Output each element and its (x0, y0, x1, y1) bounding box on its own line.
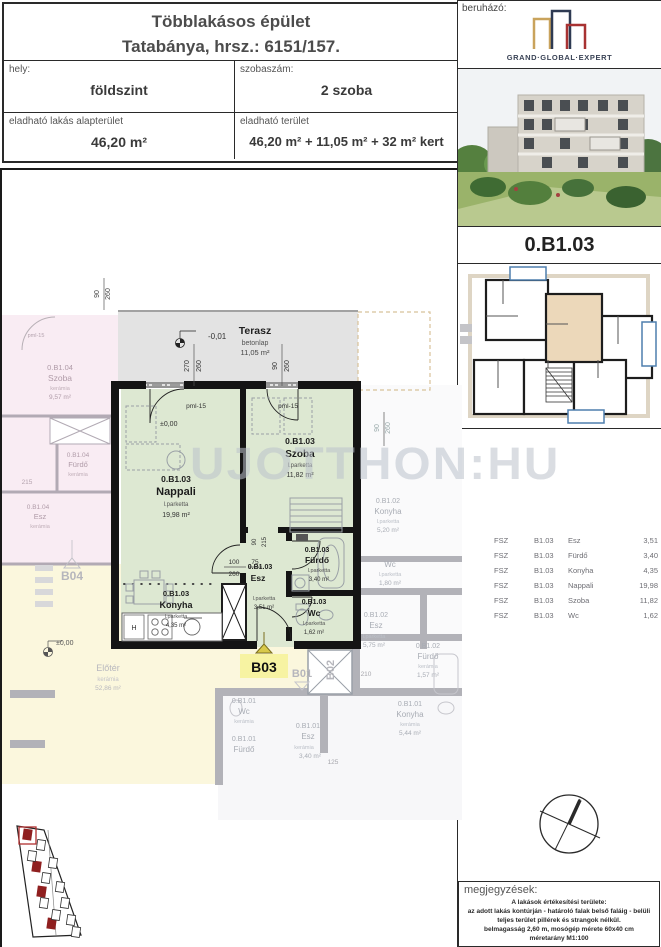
dim-label: 125 (328, 759, 339, 766)
konyha-name: Konyha (159, 600, 193, 610)
alapterulet-label: eladható lakás alapterület (9, 116, 123, 127)
developer-box: beruházó: GRAND·GLOBAL·EXPERT (458, 1, 661, 69)
wc-area: 1,62 m² (304, 630, 324, 636)
svg-text:0.B1.02: 0.B1.02 (416, 643, 440, 650)
terasz-area: 11,05 m² (240, 348, 270, 357)
svg-text:l.parketta: l.parketta (377, 519, 401, 525)
unit-code-box: 0.B1.03 (458, 226, 661, 264)
level-ground-2: ±0,00 (56, 640, 74, 647)
field-szobaszam: szobaszám: 2 szoba (235, 61, 458, 112)
field-alapterulet: eladható lakás alapterület 46,20 m² (4, 113, 235, 159)
watermark: UJOTTHON:HU (190, 438, 560, 490)
terulet-label: eladható terület (240, 116, 309, 127)
terasz-name: Terasz (239, 325, 272, 337)
svg-text:B04: B04 (61, 569, 83, 583)
dim-label: 260 (385, 422, 392, 434)
furdo-material: l.parketta (308, 568, 332, 574)
terulet-value: 46,20 m² + 11,05 m² + 32 m² kert (235, 134, 458, 149)
area-table: FSZB1.03Esz3,51 FSZB1.03Fürdő3,40 FSZB1.… (458, 533, 658, 623)
svg-text:3,40 m²: 3,40 m² (299, 753, 322, 760)
hely-label: hely: (9, 64, 30, 75)
notes-text: A lakások értékesítési területe: az adot… (459, 898, 659, 943)
svg-text:Wc: Wc (384, 560, 396, 569)
furdo-name: Fürdő (305, 555, 329, 565)
dim-label: 260 (229, 571, 240, 578)
hely-value: földszint (4, 82, 234, 98)
svg-text:kerámia: kerámia (294, 745, 315, 751)
developer-logo-icon (520, 5, 600, 53)
esz-area: 3,51 m² (254, 605, 274, 611)
svg-text:kerámia: kerámia (400, 722, 421, 728)
svg-text:kerámia: kerámia (30, 524, 51, 530)
svg-text:5,44 m²: 5,44 m² (399, 730, 422, 737)
developer-brand-name: GRAND·GLOBAL·EXPERT (458, 53, 661, 62)
svg-text:0.B1.04: 0.B1.04 (47, 363, 73, 372)
svg-text:Konyha: Konyha (396, 710, 424, 719)
svg-text:5,75 m²: 5,75 m² (363, 642, 386, 649)
notes-label: megjegyzések: (464, 884, 537, 896)
table-row: FSZB1.03Fürdő3,40 (458, 548, 658, 563)
table-row: FSZB1.03Esz3,51 (458, 533, 658, 548)
dim-label: 260 (284, 360, 291, 372)
kert-boundary (358, 312, 430, 390)
dim-label: 100 (229, 559, 240, 566)
developer-label: beruházó: (462, 3, 506, 14)
wc-material: l.parketta (303, 621, 327, 627)
page-title: Többlakásos épület Tatabánya, hrsz.: 615… (4, 4, 458, 61)
dim-label: 260 (196, 360, 203, 372)
marker-b03: B03 (251, 659, 277, 675)
marker-b02: B02 (325, 660, 337, 680)
unit-shaft (222, 584, 246, 640)
building-photo (458, 69, 661, 226)
door-label-faded: pml-15 (28, 333, 45, 339)
svg-text:kerámia: kerámia (234, 719, 255, 725)
alapterulet-value: 46,20 m² (4, 134, 234, 150)
level-terrace: -0,01 (208, 332, 227, 341)
nappali-material: l.parketta (164, 502, 189, 508)
title-line2: Tatabánya, hrsz.: 6151/157. (4, 35, 458, 60)
furdo-code: 0.B1.03 (305, 547, 330, 554)
szobaszam-label: szobaszám: (240, 64, 293, 75)
konyha-code: 0.B1.03 (163, 589, 189, 598)
svg-text:0.B1.01: 0.B1.01 (232, 698, 256, 705)
svg-text:1,57 m²: 1,57 m² (417, 672, 440, 679)
notes-box: megjegyzések: A lakások értékesítési ter… (458, 881, 660, 947)
terasz-material: betonlap (242, 340, 269, 347)
building-photo-image (458, 69, 661, 226)
svg-text:5,20 m²: 5,20 m² (377, 527, 400, 534)
table-row: FSZB1.03Szoba11,82 (458, 593, 658, 608)
floorplan-sheet: Többlakásos épület Tatabánya, hrsz.: 615… (0, 0, 661, 947)
svg-text:Esz: Esz (369, 621, 382, 630)
furdo-area: 3,40 m² (309, 577, 329, 583)
svg-text:Fürdő: Fürdő (234, 745, 255, 754)
keyplan-drawing (458, 264, 660, 426)
table-row: FSZB1.03Konyha4,35 (458, 563, 658, 578)
site-plan (8, 815, 118, 945)
level-ground: ±0,00 (160, 421, 178, 428)
svg-text:l.parketta: l.parketta (379, 572, 403, 578)
konyha-area: 4,35 m² (166, 623, 186, 629)
svg-text:Fürdő: Fürdő (68, 460, 88, 469)
svg-text:Előtér: Előtér (96, 663, 120, 673)
title-line1: Többlakásos épület (4, 10, 458, 35)
header-table: Többlakásos épület Tatabánya, hrsz.: 615… (2, 2, 460, 163)
keyplan-highlighted-unit (546, 294, 602, 362)
wc-name: Wc (308, 608, 321, 618)
svg-text:Fürdő: Fürdő (418, 652, 439, 661)
fridge-label: H (131, 625, 136, 632)
svg-text:0.B1.01: 0.B1.01 (232, 736, 256, 743)
terasz-zone (118, 312, 358, 388)
nappali-area: 19,98 m² (162, 512, 190, 519)
dim-label: 90 (272, 362, 279, 370)
svg-text:Esz: Esz (34, 512, 47, 521)
svg-text:kerámia: kerámia (97, 677, 119, 683)
svg-text:kerámia: kerámia (68, 472, 89, 478)
svg-text:l.parketta: l.parketta (363, 634, 387, 640)
svg-text:52,86 m²: 52,86 m² (95, 685, 121, 692)
keyplan-box (458, 264, 661, 429)
dim-label: 90 (252, 538, 258, 545)
esz-material: l.parketta (253, 596, 277, 602)
dim-label: 90 (94, 290, 101, 298)
konyha-material: l.parketta (165, 614, 189, 620)
svg-text:kerámia: kerámia (418, 664, 439, 670)
esz-name: Esz (251, 573, 266, 583)
table-row: FSZB1.03Wc1,62 (458, 608, 658, 623)
svg-text:0.B1.02: 0.B1.02 (376, 498, 400, 505)
szobaszam-value: 2 szoba (235, 82, 458, 98)
svg-text:0.B1.01: 0.B1.01 (398, 701, 422, 708)
field-hely: hely: földszint (4, 61, 235, 112)
wc-code: 0.B1.03 (302, 599, 327, 606)
door-label: pml-15 (278, 403, 298, 410)
nappali-code: 0.B1.03 (161, 474, 191, 484)
svg-text:Esz: Esz (301, 732, 314, 741)
svg-text:0.B1.02: 0.B1.02 (364, 612, 388, 619)
marker-b01: B01 (292, 668, 312, 680)
dim-label: 215 (262, 536, 268, 547)
dim-label: 210 (361, 671, 372, 678)
dim-label: 90 (374, 424, 381, 432)
svg-text:Wc: Wc (238, 707, 250, 716)
svg-text:9,57 m²: 9,57 m² (49, 394, 72, 401)
svg-text:0.B1.04: 0.B1.04 (27, 504, 50, 511)
dim-label: 215 (22, 479, 33, 486)
door-label: pml-15 (186, 403, 206, 410)
esz-code: 0.B1.03 (248, 564, 273, 571)
north-compass-icon (532, 782, 612, 866)
neighbor-unit-b101-zone (218, 696, 462, 820)
svg-text:kerámia: kerámia (50, 386, 71, 392)
svg-text:0.B1.04: 0.B1.04 (67, 452, 90, 459)
plan-drawing: H Terasz betonlap 11,05 m² -0,01 ±0,00 ±… (0, 160, 462, 820)
table-row: FSZB1.03Nappali19,98 (458, 578, 658, 593)
keyplan-stairs (546, 368, 572, 402)
svg-text:Konyha: Konyha (374, 507, 402, 516)
svg-text:Szoba: Szoba (48, 373, 72, 383)
dim-label: 260 (105, 288, 112, 300)
svg-text:1,80 m²: 1,80 m² (379, 580, 402, 587)
svg-text:0.B1.01: 0.B1.01 (296, 723, 320, 730)
dim-label: 270 (184, 360, 191, 372)
field-elado-terulet: eladható terület 46,20 m² + 11,05 m² + 3… (235, 113, 458, 159)
